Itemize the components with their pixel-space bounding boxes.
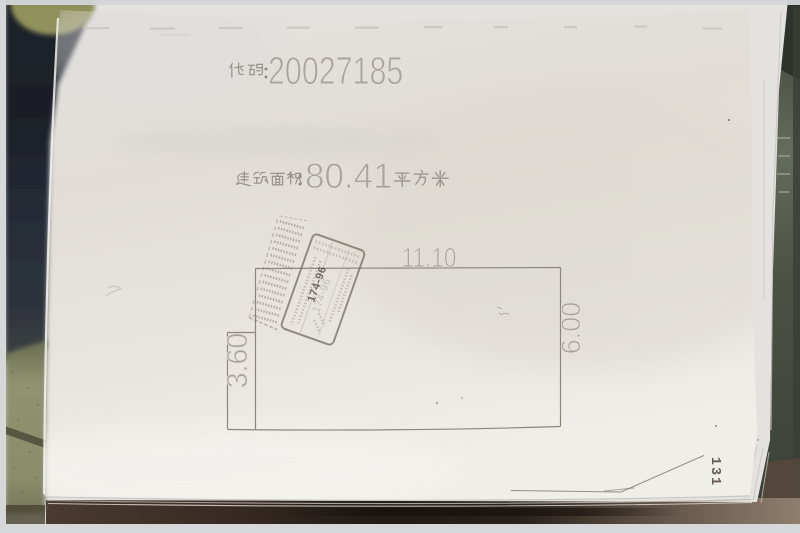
svg-text:20027185: 20027185: [268, 51, 403, 93]
svg-text:80.41: 80.41: [305, 157, 393, 196]
svg-text:11.10: 11.10: [402, 243, 457, 274]
svg-text:131: 131: [707, 457, 722, 487]
svg-text:3.60: 3.60: [222, 333, 254, 388]
svg-text:6.00: 6.00: [556, 302, 586, 355]
